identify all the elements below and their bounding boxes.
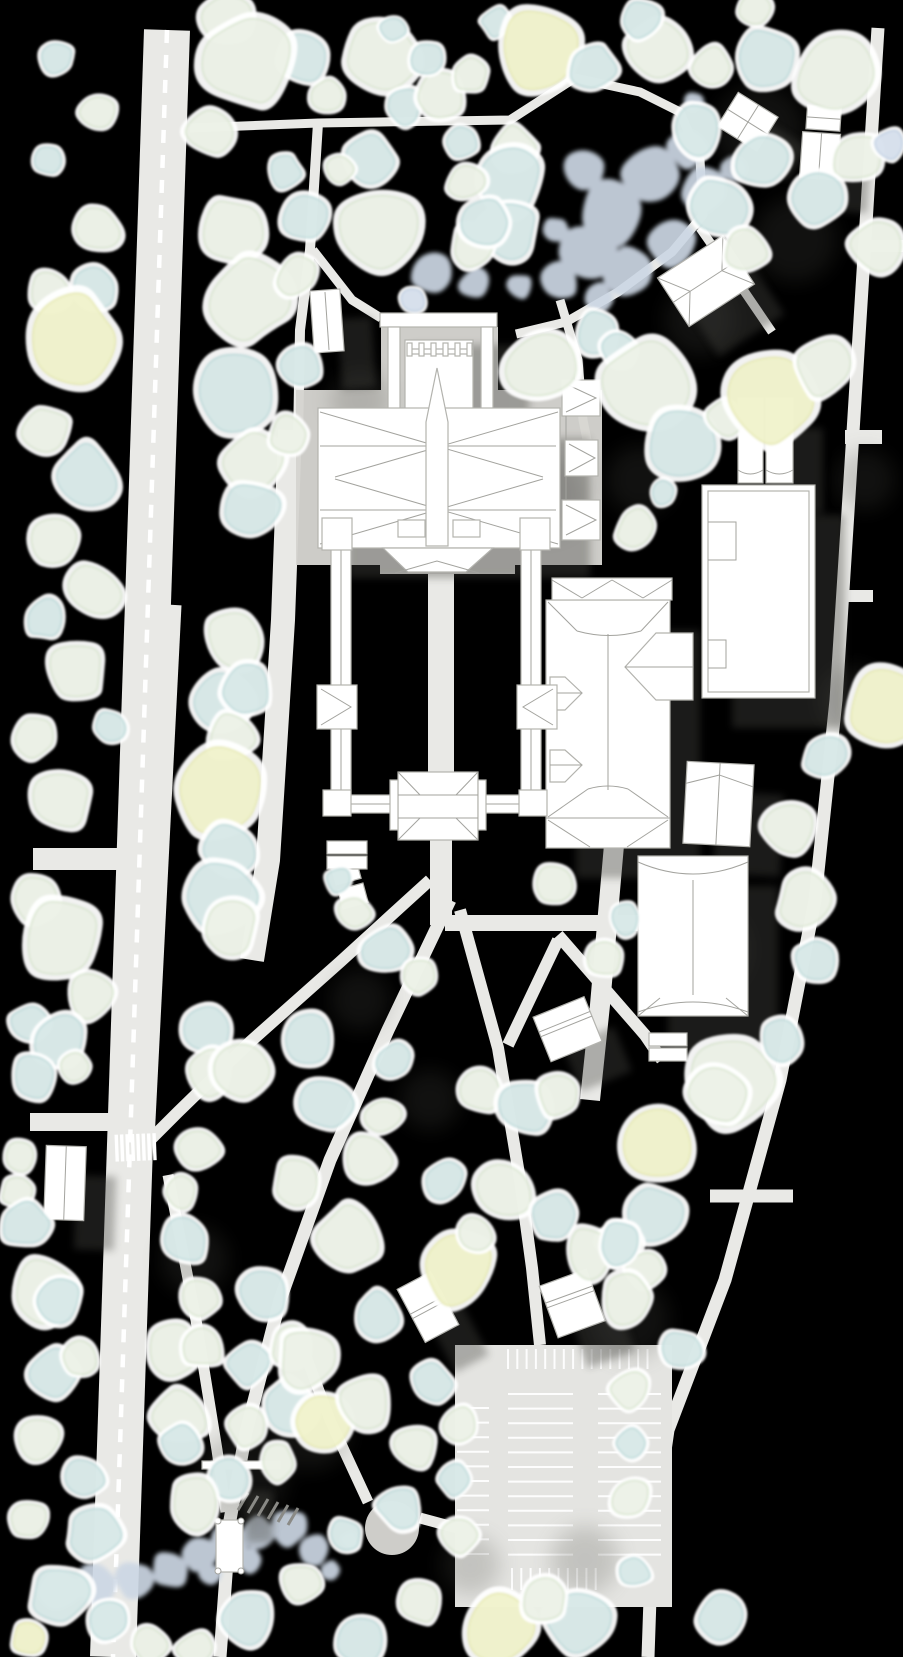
tree-fill <box>50 646 100 696</box>
tree-fill <box>277 1160 317 1206</box>
tree-fill <box>34 147 61 173</box>
cloister-part <box>323 790 351 816</box>
main-hall-part <box>398 520 425 537</box>
tree-fill <box>653 481 674 505</box>
site-plan-canvas <box>0 0 903 1657</box>
tree-fill <box>280 347 319 385</box>
north-gate-part <box>443 343 448 356</box>
tree-fill <box>299 1081 354 1127</box>
site-plan-page <box>0 0 903 1657</box>
tree-shadow <box>400 1070 460 1130</box>
tree-canopy <box>31 143 66 177</box>
tree-fill <box>37 1279 79 1323</box>
building-nw-pavilion <box>310 289 344 353</box>
tree-shadow <box>835 450 895 510</box>
tree-fill <box>80 97 115 127</box>
north-gate-part <box>431 343 436 356</box>
tree-fill <box>31 519 76 564</box>
north-gate-part <box>380 313 497 327</box>
bridge-part <box>216 1520 243 1572</box>
bridge-post <box>238 1518 244 1524</box>
tree-fill <box>199 354 271 432</box>
tree-shadow <box>330 970 390 1030</box>
tree-canopy <box>11 1051 57 1103</box>
cloister-part <box>322 518 352 550</box>
tree-fill <box>796 941 835 979</box>
tree-canopy <box>272 1155 321 1212</box>
tree-canopy <box>407 40 447 77</box>
north-gate-part <box>407 343 412 356</box>
tree-fill <box>331 1520 360 1550</box>
tree-fill <box>539 1076 576 1116</box>
tree-fill <box>533 1194 575 1238</box>
tree-fill <box>174 1478 216 1531</box>
bridge-post <box>215 1568 221 1574</box>
tree-fill <box>183 1328 220 1364</box>
east-hall-part <box>552 578 672 600</box>
tree-fill <box>16 1056 53 1098</box>
south-steps-east-part <box>649 1033 687 1046</box>
south-steps-west-part <box>327 841 367 854</box>
building-mid-hall <box>683 761 754 846</box>
north-gate-part <box>419 343 424 356</box>
building-east-wall-pavilions <box>562 380 600 540</box>
cloister-part <box>520 518 550 550</box>
pond <box>543 218 569 242</box>
tree-fill <box>61 1053 89 1081</box>
south-gate-part <box>390 780 398 830</box>
tree-fill <box>662 1333 701 1366</box>
building-east-compound <box>702 485 815 698</box>
south-gate-part <box>398 772 478 840</box>
tree-fill <box>740 30 794 86</box>
tree-fill <box>28 902 96 974</box>
north-gate-part <box>388 327 400 412</box>
tree-fill <box>461 199 507 244</box>
tree-fill <box>206 901 255 955</box>
tree-fill <box>764 1020 800 1062</box>
tree-canopy <box>583 938 625 978</box>
tree-fill <box>286 1014 330 1063</box>
tree-fill <box>11 1504 46 1535</box>
south-steps-east-part <box>649 1048 687 1061</box>
tree-fill <box>537 866 573 901</box>
bridge-post <box>238 1568 244 1574</box>
north-gate-part <box>455 343 460 356</box>
tree-fill <box>411 44 442 73</box>
tree-fill <box>460 1070 499 1109</box>
east-wall-pavilions-part <box>565 440 598 476</box>
main-hall-part <box>453 520 480 537</box>
tree-fill <box>6 1142 33 1172</box>
tree-fill <box>380 18 406 40</box>
building-shadow <box>338 317 377 389</box>
south-gate-part <box>478 780 486 830</box>
tree-fill <box>401 289 424 311</box>
tree-fill <box>204 201 264 259</box>
tree-fill <box>338 1618 383 1657</box>
building-south-gate <box>390 772 486 840</box>
tree-fill <box>524 1578 564 1620</box>
building-bridge <box>215 1518 244 1574</box>
north-gate-part <box>481 327 493 412</box>
tree-fill <box>447 127 477 157</box>
tree-fill <box>63 1340 96 1374</box>
tree-fill <box>327 869 350 893</box>
building-south-hall <box>638 856 748 1016</box>
building-west-building <box>44 1145 87 1220</box>
tree-fill <box>587 942 620 974</box>
tree-fill <box>283 196 328 238</box>
east-compound-part <box>702 485 815 698</box>
tree-fill <box>623 1109 691 1176</box>
north-gate-part <box>467 343 472 356</box>
tree-fill <box>14 1622 45 1653</box>
cloister-part <box>519 790 547 816</box>
tree-fill <box>184 1007 229 1050</box>
